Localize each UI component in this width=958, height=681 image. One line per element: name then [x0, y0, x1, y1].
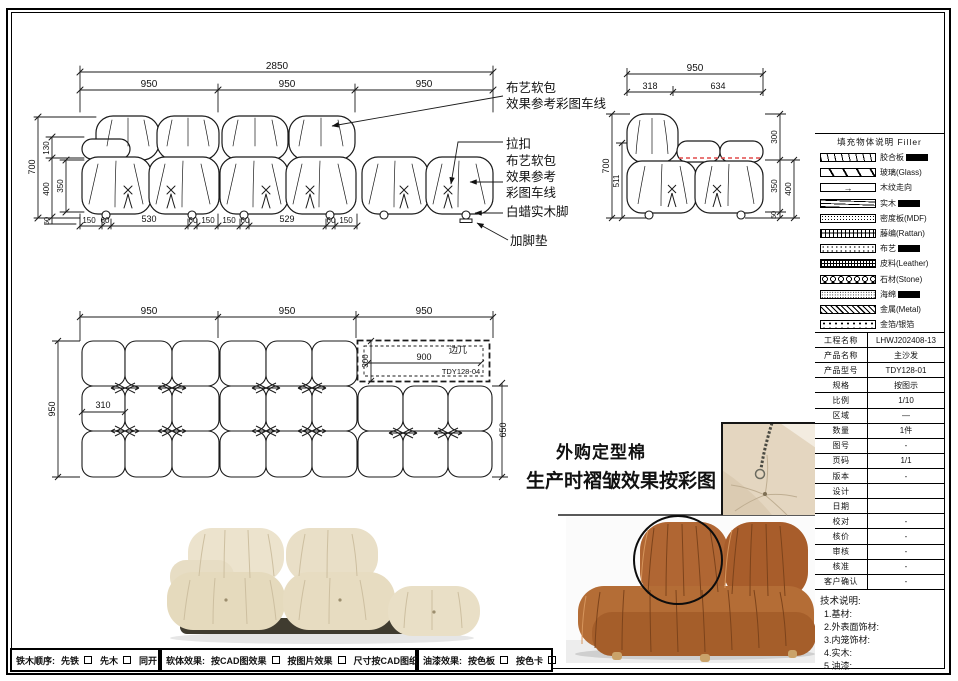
solid-wood-swatch-icon	[820, 199, 876, 208]
highlight-bar	[906, 154, 928, 161]
tech-notes: 技术说明: 1.基材: 2.外表面饰材: 3.内笼饰材: 4.实木: 5.油漆:	[815, 589, 944, 667]
svg-text:350: 350	[770, 179, 779, 193]
title-block-row: 设计	[815, 484, 944, 499]
svg-text:150: 150	[201, 216, 215, 225]
svg-text:511: 511	[612, 174, 621, 187]
dim-label: 2850	[266, 61, 289, 72]
cream-sofa-photo	[167, 528, 480, 644]
svg-text:950: 950	[141, 306, 158, 317]
checkbox-icon[interactable]	[338, 656, 346, 664]
svg-text:60: 60	[327, 216, 336, 225]
title-block-row: 核准-	[815, 560, 944, 575]
svg-text:529: 529	[279, 214, 294, 224]
svg-text:650: 650	[498, 422, 508, 437]
side-table-model: TDY128-04	[442, 367, 480, 376]
legend-item: →木纹走向	[815, 180, 944, 195]
callout-wood-leg: 白蜡实木脚	[506, 204, 569, 219]
svg-text:300: 300	[361, 354, 370, 368]
svg-text:950: 950	[416, 79, 433, 90]
svg-text:150: 150	[339, 216, 353, 225]
svg-text:950: 950	[416, 306, 433, 317]
side-backrest	[627, 114, 678, 163]
legend-title: 填充物体说明 Filler	[815, 134, 944, 150]
title-block-row: 产品名称主沙发	[815, 348, 944, 363]
stone-swatch-icon	[820, 275, 876, 284]
title-block-row: 版本-	[815, 469, 944, 484]
footer-upholstery-effect: 软体效果: 按CAD图效果 按图片效果 尺寸按CAD图纸	[160, 648, 417, 672]
svg-text:彩图车线: 彩图车线	[506, 185, 557, 200]
foil-swatch-icon	[820, 320, 876, 329]
title-block: 工程名称LHWJ202408-13 产品名称主沙发 产品型号TDY128-01 …	[815, 332, 944, 590]
svg-text:310: 310	[95, 400, 110, 410]
leather-swatch-icon	[820, 259, 876, 268]
svg-text:400: 400	[784, 182, 793, 196]
checkbox-icon[interactable]	[548, 656, 556, 664]
production-note-line1: 外购定型棉	[556, 438, 646, 463]
cushion-closeup-photo	[722, 423, 816, 515]
title-block-row: 规格按图示	[815, 378, 944, 393]
svg-text:300: 300	[770, 130, 779, 144]
title-block-row: 产品型号TDY128-01	[815, 363, 944, 378]
foot-pad	[460, 219, 472, 223]
svg-text:150: 150	[82, 216, 96, 225]
checkbox-icon[interactable]	[123, 656, 131, 664]
legend-item: 玻璃(Glass)	[815, 165, 944, 180]
svg-text:60: 60	[101, 216, 110, 225]
plywood-swatch-icon	[820, 153, 876, 162]
svg-text:350: 350	[56, 179, 65, 193]
title-block-row: 工程名称LHWJ202408-13	[815, 333, 944, 348]
side-table-dashed-box: 900 300 边几 TDY128-04	[358, 338, 490, 384]
highlight-bar	[898, 245, 920, 252]
title-block-row: 区域—	[815, 409, 944, 424]
highlight-bar	[898, 200, 920, 207]
svg-text:60: 60	[241, 216, 250, 225]
production-note-line2: 生产时褶皱效果按彩图	[526, 466, 716, 493]
callout-fabric-1: 布艺软包	[506, 81, 556, 95]
legend-item: 金箔/银箔	[815, 317, 944, 332]
title-block-row: 图号-	[815, 439, 944, 454]
svg-text:50: 50	[42, 217, 51, 225]
plan-view: 310 900 300 边几 TDY128-04 950 950 950 950…	[47, 306, 508, 480]
checkbox-icon[interactable]	[84, 656, 92, 664]
legend-item: 布艺	[815, 241, 944, 256]
svg-text:700: 700	[601, 158, 611, 173]
legend-item: 密度板(MDF)	[815, 211, 944, 226]
svg-text:效果参考彩图车线: 效果参考彩图车线	[506, 96, 607, 111]
title-block-row: 日期	[815, 499, 944, 514]
svg-text:634: 634	[710, 81, 725, 91]
glass-swatch-icon	[820, 168, 876, 177]
svg-text:950: 950	[279, 79, 296, 90]
svg-text:950: 950	[47, 401, 57, 416]
seat-cushion	[82, 157, 151, 214]
materials-legend: 填充物体说明 Filler 胶合板 玻璃(Glass) →木纹走向 实木 密度板…	[815, 133, 944, 333]
checkbox-icon[interactable]	[500, 656, 508, 664]
svg-text:效果参考: 效果参考	[506, 169, 556, 184]
armrest	[82, 139, 130, 159]
legend-item: 皮料(Leather)	[815, 256, 944, 271]
svg-text:150: 150	[222, 216, 236, 225]
footer-paint-effect: 油漆效果: 按色板 按色卡	[417, 648, 553, 672]
callout-fabric-2: 布艺软包	[506, 154, 556, 168]
title-block-row: 页码1/1	[815, 454, 944, 469]
wood-grain-direction-swatch-icon: →	[820, 183, 876, 192]
title-block-row: 数量1件	[815, 424, 944, 439]
footer-production-order: 铁木顺序: 先铁 先木 同开	[10, 648, 160, 672]
svg-text:700: 700	[27, 159, 37, 174]
fabric-swatch-icon	[820, 244, 876, 253]
svg-text:60: 60	[189, 216, 198, 225]
svg-text:530: 530	[141, 214, 156, 224]
legend-item: 石材(Stone)	[815, 272, 944, 287]
svg-text:400: 400	[42, 182, 51, 196]
highlight-bar	[898, 291, 920, 298]
legend-item: 胶合板	[815, 150, 944, 165]
legend-item: 金属(Metal)	[815, 302, 944, 317]
svg-text:50: 50	[769, 211, 778, 219]
title-block-row: 比例1/10	[815, 393, 944, 408]
title-block-row: 校对-	[815, 514, 944, 529]
svg-text:950: 950	[279, 306, 296, 317]
svg-text:950: 950	[141, 79, 158, 90]
svg-text:318: 318	[642, 81, 657, 91]
wood-grain-arrow-icon: →	[844, 185, 853, 191]
mdf-swatch-icon	[820, 214, 876, 223]
legend-item: 实木	[815, 196, 944, 211]
checkbox-icon[interactable]	[272, 656, 280, 664]
title-block-row: 审核-	[815, 545, 944, 560]
svg-text:900: 900	[416, 352, 431, 362]
front-elevation: 2850 950 950 950 700 130 400 350 50 150 …	[27, 61, 496, 229]
drawing-sheet: 2850 950 950 950 700 130 400 350 50 150 …	[0, 0, 958, 681]
callout-foot-pad: 加脚垫	[510, 233, 548, 248]
legend-item: 藤编(Rattan)	[815, 226, 944, 241]
metal-swatch-icon	[820, 305, 876, 314]
title-block-row: 核价-	[815, 529, 944, 544]
sponge-swatch-icon	[820, 290, 876, 299]
plan-cell	[82, 341, 125, 386]
svg-text:130: 130	[42, 141, 51, 155]
title-block-row: 客户确认-	[815, 575, 944, 590]
svg-text:950: 950	[687, 63, 704, 74]
side-table-label: 边几	[449, 345, 467, 355]
callout-pull-buckle: 拉扣	[506, 136, 531, 151]
legend-item: 海绵	[815, 287, 944, 302]
orange-sofa-photo	[566, 516, 816, 663]
rattan-swatch-icon	[820, 229, 876, 238]
side-elevation: 950 318 634 700 511 300 350 50 400	[601, 63, 800, 221]
